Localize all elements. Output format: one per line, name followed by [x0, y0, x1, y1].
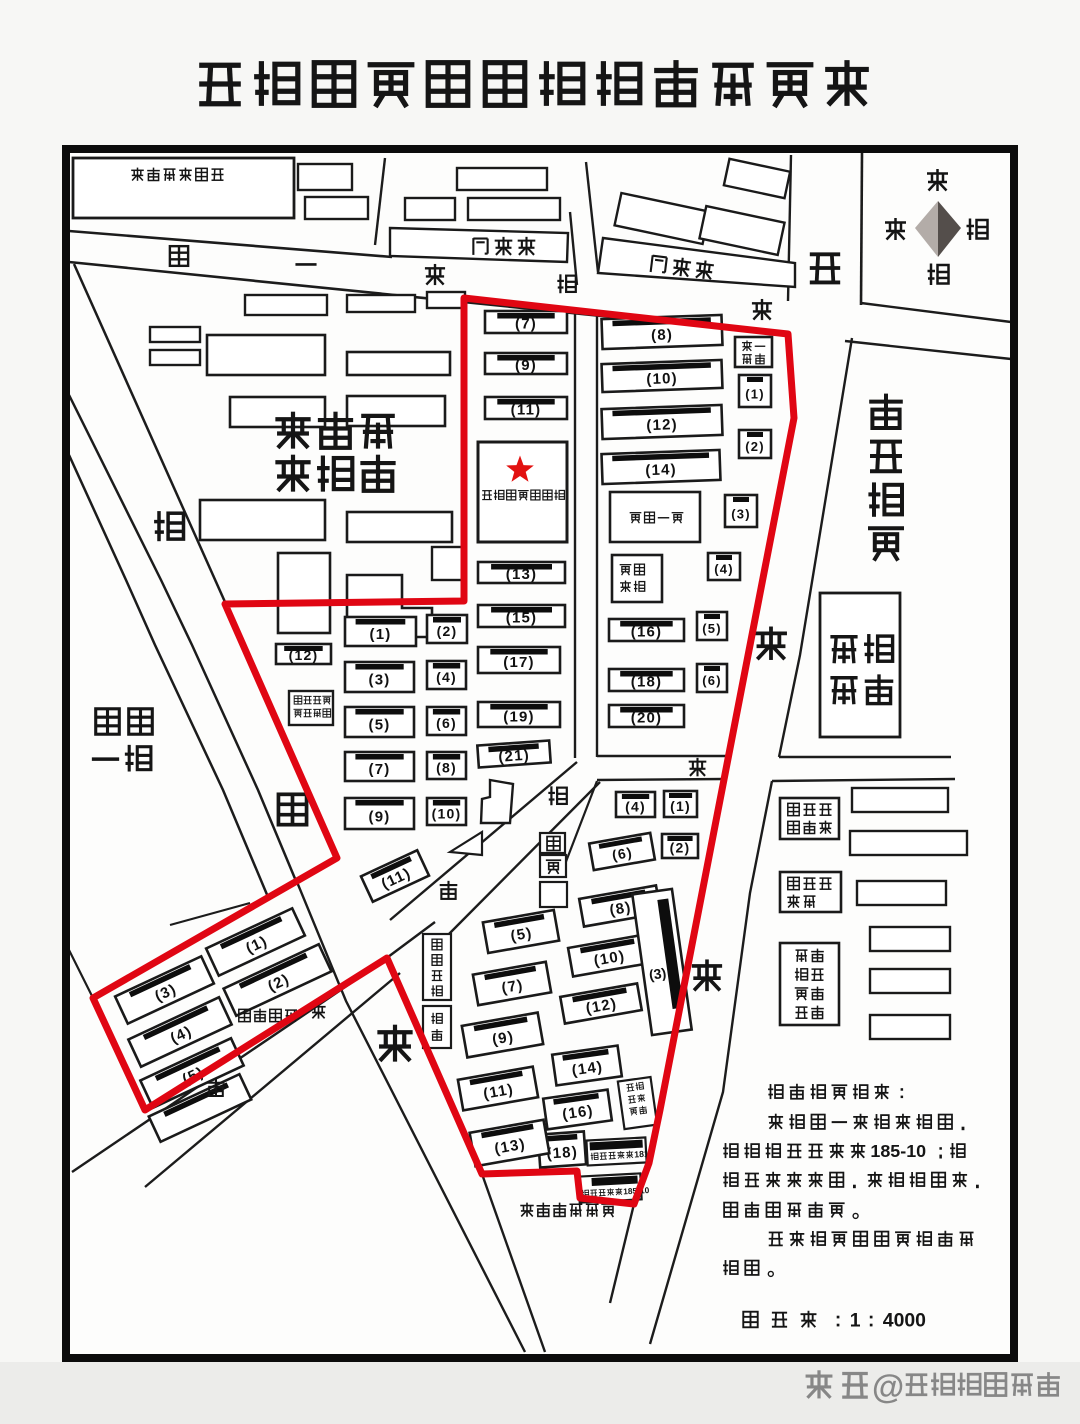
svg-text:(18): (18) [546, 1144, 579, 1163]
svg-text:(14): (14) [645, 461, 677, 479]
svg-text:(21): (21) [498, 747, 531, 766]
svg-text:(10): (10) [432, 806, 462, 822]
svg-text:(1): (1) [745, 386, 765, 401]
svg-text:(5): (5) [369, 717, 391, 734]
svg-text:(6): (6) [436, 715, 457, 731]
svg-text:(2): (2) [670, 840, 691, 856]
svg-text:(3): (3) [369, 672, 391, 689]
svg-text:(4): (4) [714, 561, 734, 576]
svg-text:(5): (5) [702, 621, 722, 636]
svg-text:(3): (3) [648, 965, 667, 983]
svg-text:(19): (19) [503, 709, 534, 726]
svg-text:(8): (8) [651, 326, 674, 344]
svg-text:4000: 4000 [883, 1309, 926, 1331]
svg-text:(4): (4) [436, 669, 457, 685]
svg-text:(12): (12) [646, 416, 678, 434]
svg-text:185-10: 185-10 [870, 1141, 926, 1161]
svg-text:(11): (11) [511, 402, 542, 419]
svg-text:(20): (20) [631, 710, 662, 727]
svg-text:(10): (10) [646, 370, 678, 388]
svg-text:(1): (1) [370, 626, 392, 643]
svg-text:(16): (16) [631, 624, 662, 641]
svg-text:(2): (2) [437, 623, 458, 639]
svg-text:(1): (1) [670, 798, 691, 814]
svg-text:(13): (13) [506, 566, 537, 583]
svg-text:(2): (2) [745, 439, 765, 454]
svg-text:@: @ [872, 1368, 904, 1405]
svg-text:(12): (12) [289, 647, 319, 663]
svg-text:(8): (8) [436, 760, 457, 776]
svg-text:(15): (15) [506, 610, 537, 627]
svg-text:(17): (17) [503, 654, 534, 671]
svg-text:(9): (9) [515, 357, 537, 374]
svg-text:(4): (4) [625, 798, 646, 814]
svg-text:1: 1 [850, 1309, 861, 1331]
svg-text:(7): (7) [369, 761, 391, 778]
svg-text:(9): (9) [369, 808, 391, 825]
svg-text:(6): (6) [702, 673, 722, 688]
svg-text:(7): (7) [515, 316, 537, 333]
svg-text:(3): (3) [731, 506, 751, 521]
svg-text:(18): (18) [631, 674, 662, 691]
